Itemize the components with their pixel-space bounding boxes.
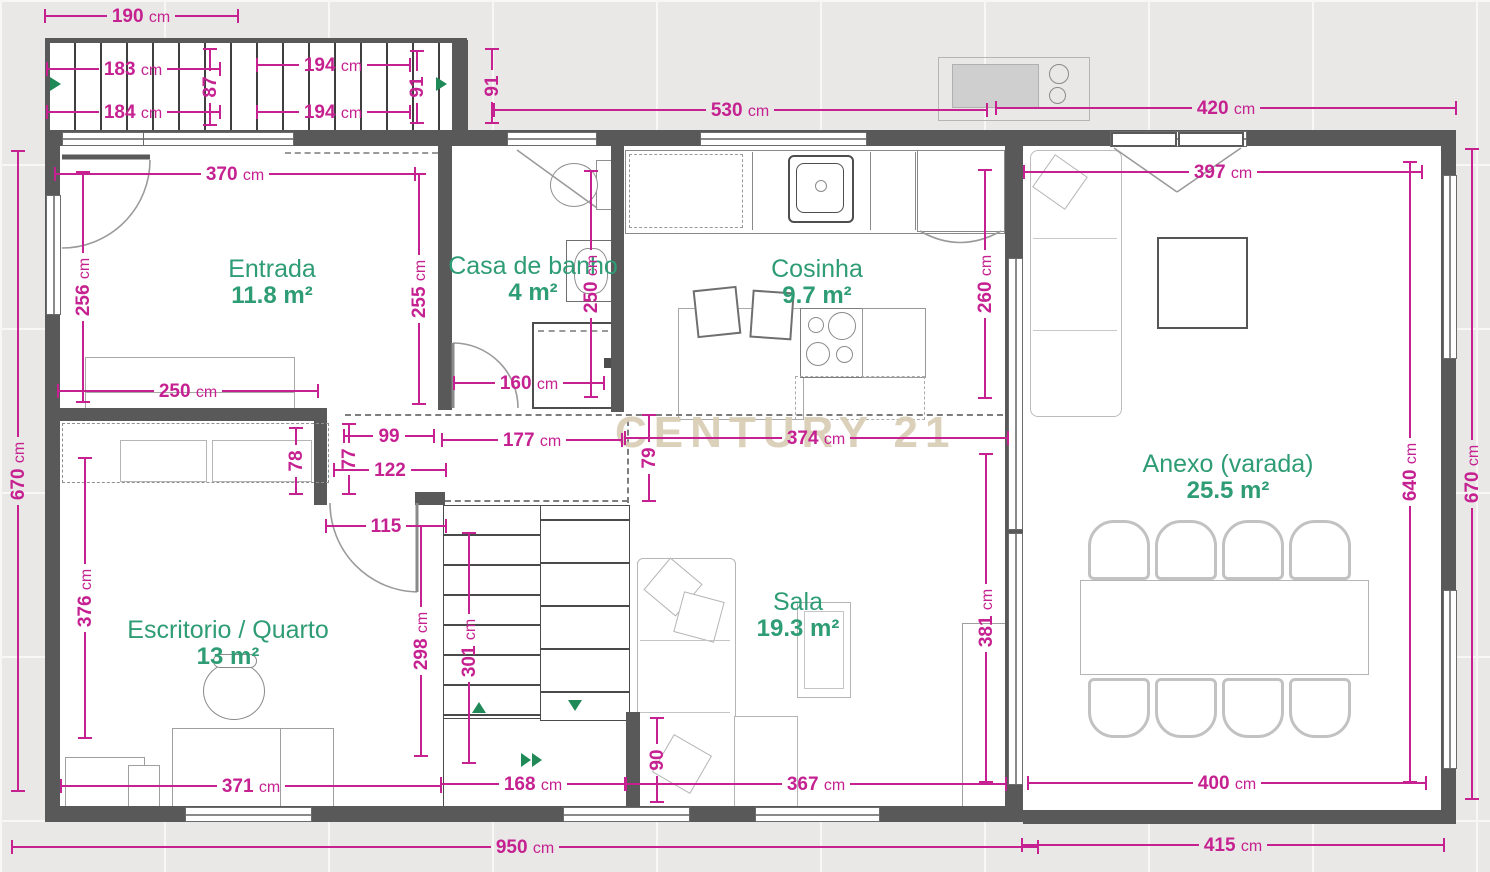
- room-area: 19.3 m²: [757, 616, 840, 643]
- stair-down-arrow: [568, 700, 582, 711]
- room-name: Cosinha: [771, 255, 863, 283]
- room-area: 25.5 m²: [1143, 478, 1314, 505]
- annex-door-leaf: [1112, 133, 1176, 146]
- room-label-banho: Casa de banho 4 m²: [448, 252, 618, 307]
- stair-direction-arrow: [50, 77, 61, 91]
- annex-door-swing: [1114, 148, 1177, 192]
- room-name: Sala: [757, 588, 840, 616]
- annex-door-swing: [1177, 148, 1241, 192]
- room-name: Entrada: [228, 255, 316, 283]
- room-area: 9.7 m²: [771, 283, 863, 310]
- floor-plan: CENTURY 21 Entrada 11.8 m² Casa de banho…: [0, 0, 1490, 872]
- entrada-door-arc: [62, 160, 150, 248]
- stair-up-arrow: [472, 702, 486, 713]
- stair-landing-arrow: [532, 753, 542, 767]
- annex-door-leaf: [1179, 133, 1243, 146]
- bath-top-door-swing: [517, 150, 597, 208]
- stair-landing-arrow: [521, 753, 531, 767]
- room-name: Casa de banho: [448, 252, 618, 280]
- room-area: 4 m²: [448, 280, 618, 307]
- room-label-cosinha: Cosinha 9.7 m²: [771, 255, 863, 310]
- room-label-sala: Sala 19.3 m²: [757, 588, 840, 643]
- century21-watermark: CENTURY 21: [615, 408, 956, 458]
- room-name: Escritorio / Quarto: [127, 616, 328, 644]
- hall-door-arc: [330, 503, 417, 592]
- room-label-entrada: Entrada 11.8 m²: [228, 255, 316, 310]
- kitchen-corner-curve: [920, 231, 1001, 243]
- bath-door-arc: [453, 343, 518, 408]
- room-name: Anexo (varada): [1143, 450, 1314, 478]
- room-area: 13 m²: [127, 644, 328, 671]
- stair-direction-arrow: [436, 77, 447, 91]
- room-label-escritorio: Escritorio / Quarto 13 m²: [127, 616, 328, 671]
- room-label-anexo: Anexo (varada) 25.5 m²: [1143, 450, 1314, 505]
- room-area: 11.8 m²: [228, 283, 316, 310]
